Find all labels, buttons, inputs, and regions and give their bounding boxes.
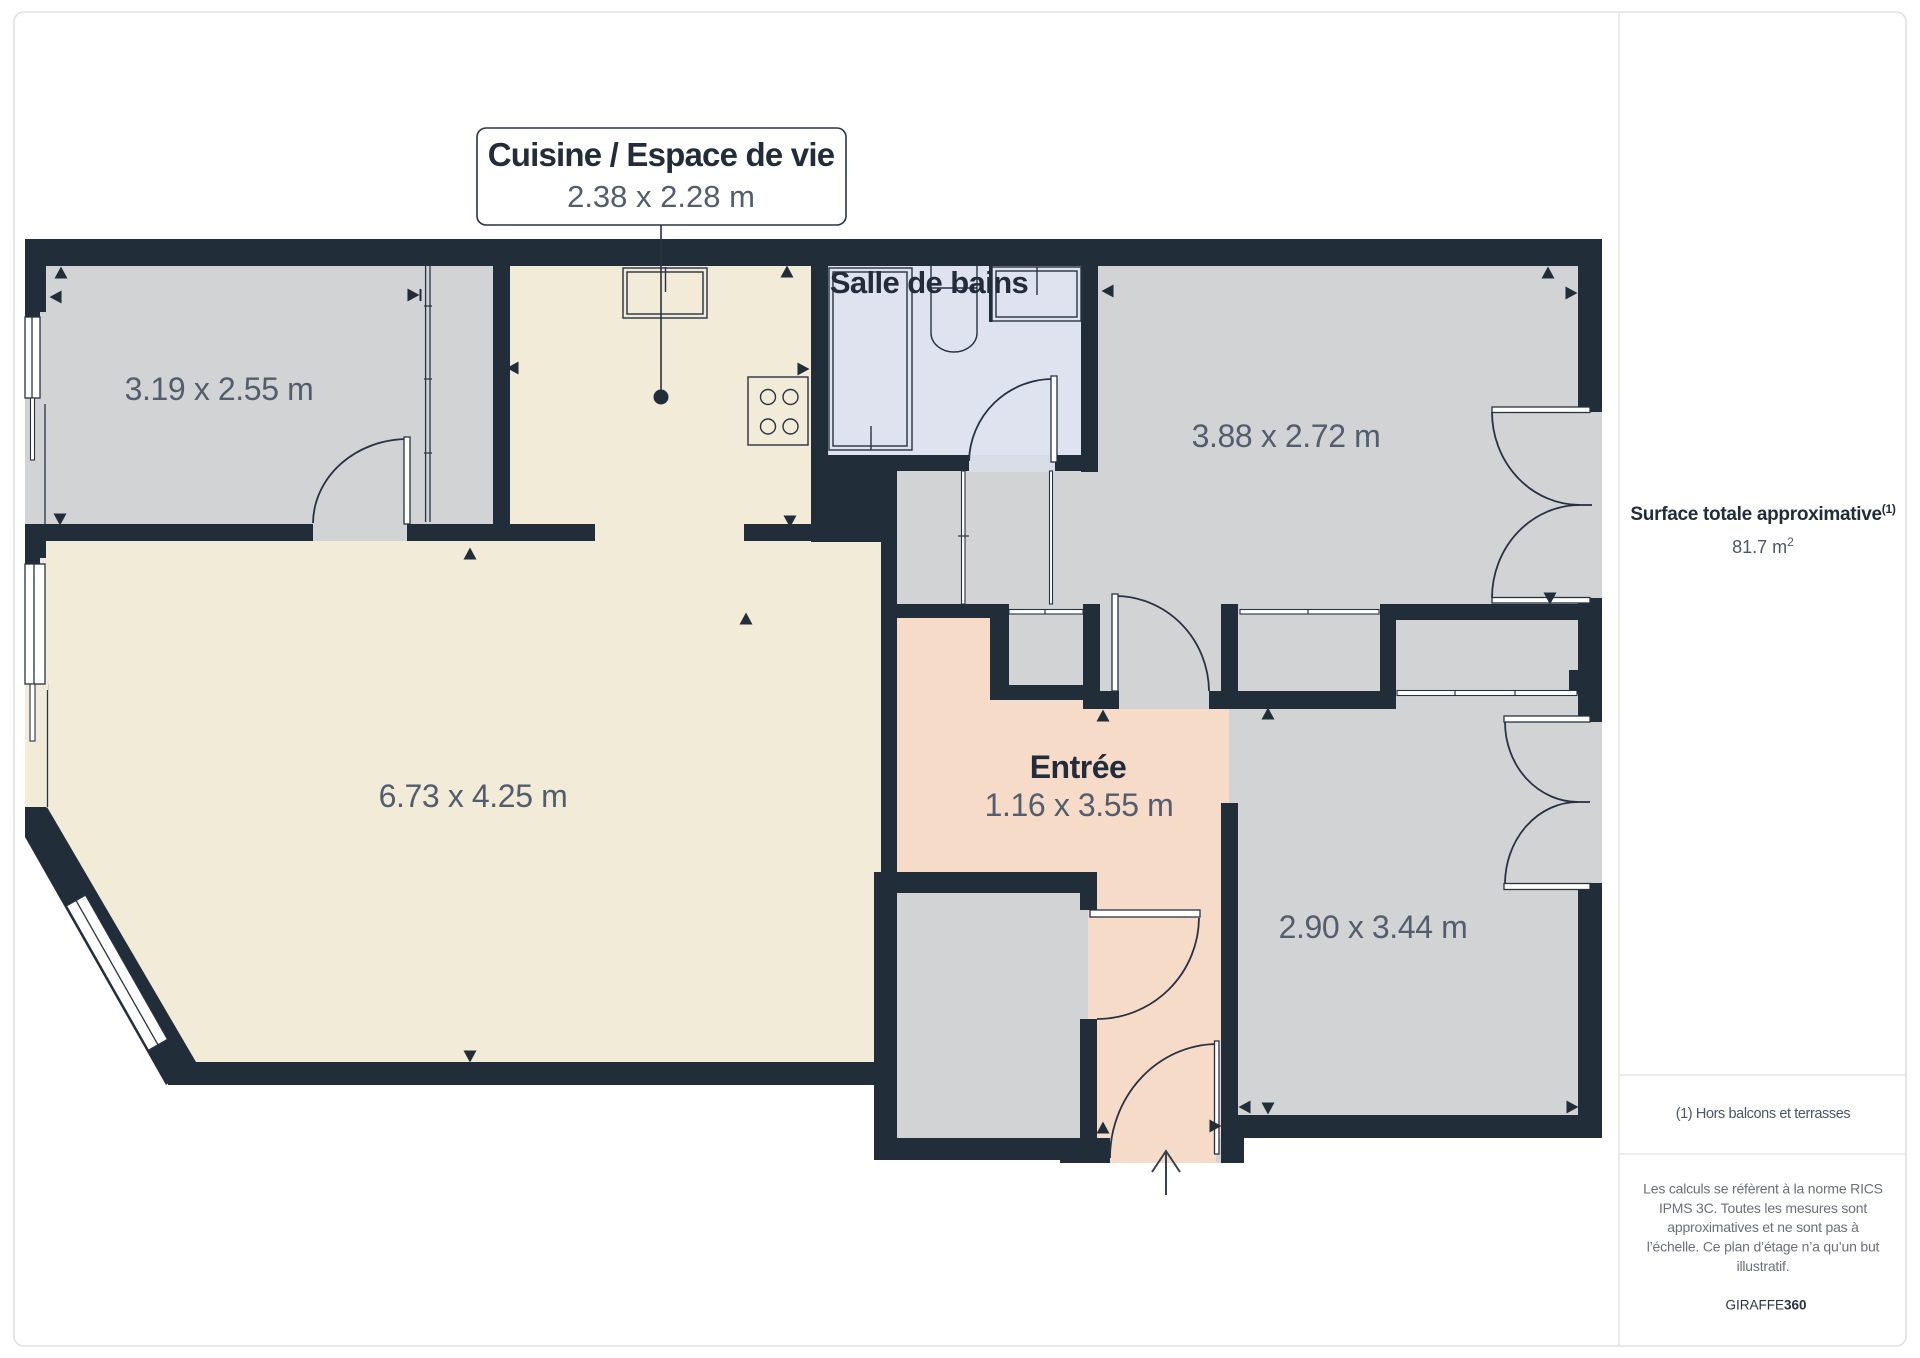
svg-text:Salle de bains: Salle de bains [830,265,1028,300]
svg-text:l’échelle. Ce plan d’étage n’a: l’échelle. Ce plan d’étage n’a qu’un but [1647,1239,1880,1255]
svg-text:2.90 x 3.44 m: 2.90 x 3.44 m [1279,909,1468,945]
svg-text:Entrée: Entrée [1030,749,1127,785]
svg-text:(1) Hors balcons et terrasses: (1) Hors balcons et terrasses [1676,1106,1851,1122]
svg-text:illustratif.: illustratif. [1737,1258,1790,1274]
svg-text:3.88 x 2.72 m: 3.88 x 2.72 m [1192,418,1381,454]
svg-text:2.38 x 2.28 m: 2.38 x 2.28 m [567,179,755,214]
svg-text:GIRAFFE360: GIRAFFE360 [1725,1298,1806,1313]
svg-text:3.19 x 2.55 m: 3.19 x 2.55 m [125,371,314,407]
svg-text:81.7 m2: 81.7 m2 [1732,535,1794,557]
svg-text:Cuisine / Espace de vie: Cuisine / Espace de vie [488,136,835,173]
svg-text:Les calculs se réfèrent à la n: Les calculs se réfèrent à la norme RICS [1643,1181,1883,1197]
svg-text:approximatives et ne sont pas: approximatives et ne sont pas à [1667,1219,1859,1235]
svg-text:IPMS 3C. Toutes les mesures so: IPMS 3C. Toutes les mesures sont [1659,1200,1867,1216]
svg-text:6.73 x 4.25 m: 6.73 x 4.25 m [379,778,568,814]
svg-text:1.16 x 3.55 m: 1.16 x 3.55 m [985,787,1174,823]
svg-text:Surface totale approximative(1: Surface totale approximative(1) [1630,502,1895,525]
